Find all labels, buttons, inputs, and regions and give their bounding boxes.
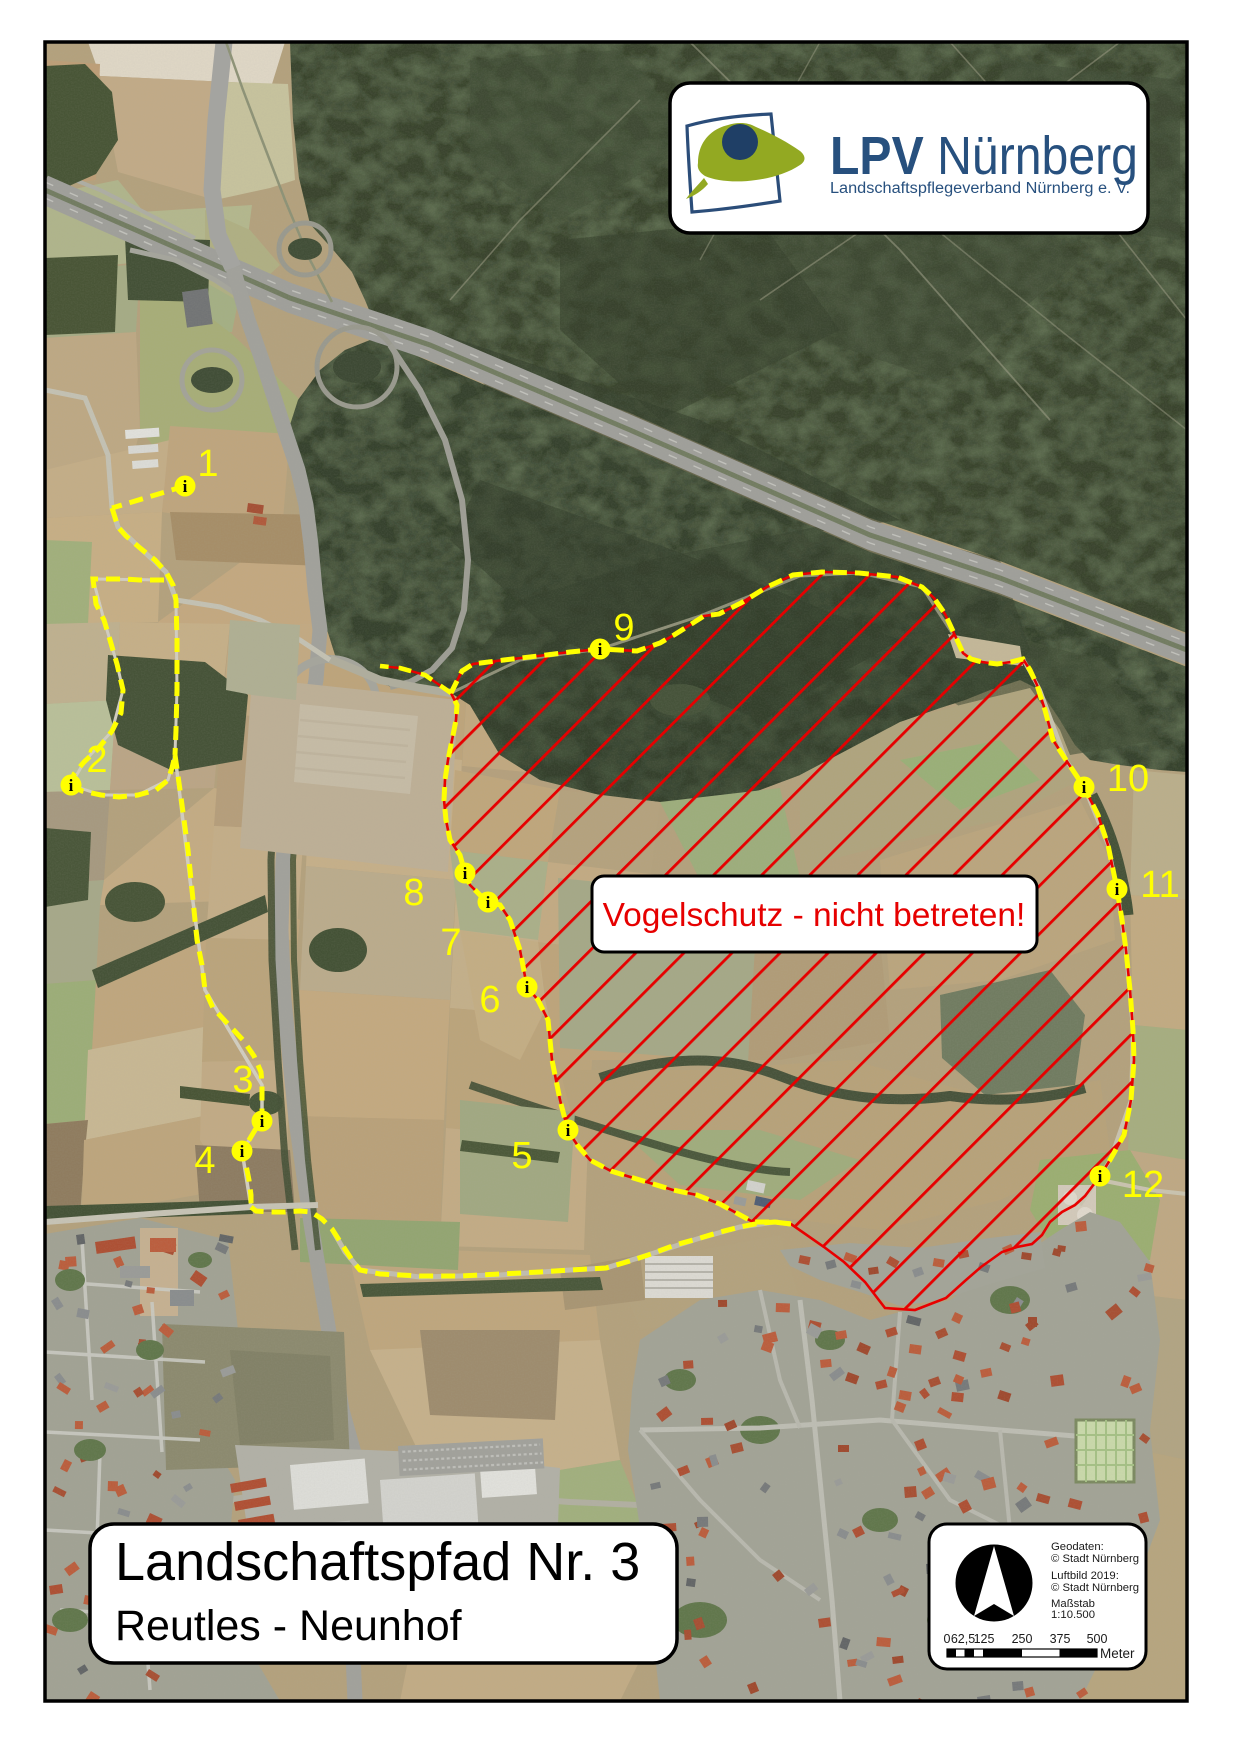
svg-text:i: i: [486, 893, 491, 912]
svg-text:i: i: [598, 640, 603, 659]
svg-text:1: 1: [197, 443, 218, 485]
svg-text:4: 4: [194, 1140, 215, 1182]
svg-text:250: 250: [1012, 1632, 1033, 1646]
svg-text:LPV Nürnberg: LPV Nürnberg: [830, 126, 1138, 186]
svg-text:i: i: [525, 978, 530, 997]
svg-text:2: 2: [86, 739, 107, 781]
svg-text:© Stadt Nürnberg: © Stadt Nürnberg: [1051, 1582, 1139, 1594]
svg-text:i: i: [566, 1121, 571, 1140]
svg-text:125: 125: [974, 1632, 995, 1646]
svg-text:Vogelschutz - nicht betreten!: Vogelschutz - nicht betreten!: [603, 897, 1026, 934]
svg-text:i: i: [260, 1112, 265, 1131]
svg-text:375: 375: [1050, 1632, 1071, 1646]
svg-text:6: 6: [479, 979, 500, 1021]
svg-text:i: i: [183, 477, 188, 496]
svg-text:62,5: 62,5: [951, 1632, 975, 1646]
svg-text:i: i: [69, 776, 74, 795]
svg-text:i: i: [1115, 880, 1120, 899]
svg-text:0: 0: [944, 1632, 951, 1646]
svg-text:Reutles - Neunhof: Reutles - Neunhof: [115, 1602, 463, 1650]
svg-text:Landschaftspfad Nr. 3: Landschaftspfad Nr. 3: [115, 1532, 640, 1592]
svg-text:Meter: Meter: [1100, 1646, 1135, 1661]
svg-text:7: 7: [440, 922, 461, 964]
svg-text:12: 12: [1122, 1164, 1164, 1206]
svg-text:9: 9: [613, 607, 634, 649]
svg-text:11: 11: [1140, 864, 1179, 906]
svg-text:Geodaten:: Geodaten:: [1051, 1541, 1104, 1553]
svg-text:i: i: [240, 1142, 245, 1161]
svg-text:8: 8: [403, 872, 424, 914]
svg-text:500: 500: [1087, 1632, 1108, 1646]
svg-text:10: 10: [1107, 758, 1149, 800]
svg-text:i: i: [1082, 778, 1087, 797]
svg-text:1:10.500: 1:10.500: [1051, 1609, 1095, 1621]
svg-text:3: 3: [232, 1059, 253, 1101]
svg-text:Landschaftspflegeverband Nürnb: Landschaftspflegeverband Nürnberg e. V.: [830, 180, 1130, 197]
svg-text:i: i: [1098, 1167, 1103, 1186]
svg-text:© Stadt Nürnberg: © Stadt Nürnberg: [1051, 1553, 1139, 1565]
svg-text:Luftbild 2019:: Luftbild 2019:: [1051, 1570, 1119, 1582]
svg-text:5: 5: [511, 1135, 532, 1177]
svg-text:i: i: [463, 864, 468, 883]
